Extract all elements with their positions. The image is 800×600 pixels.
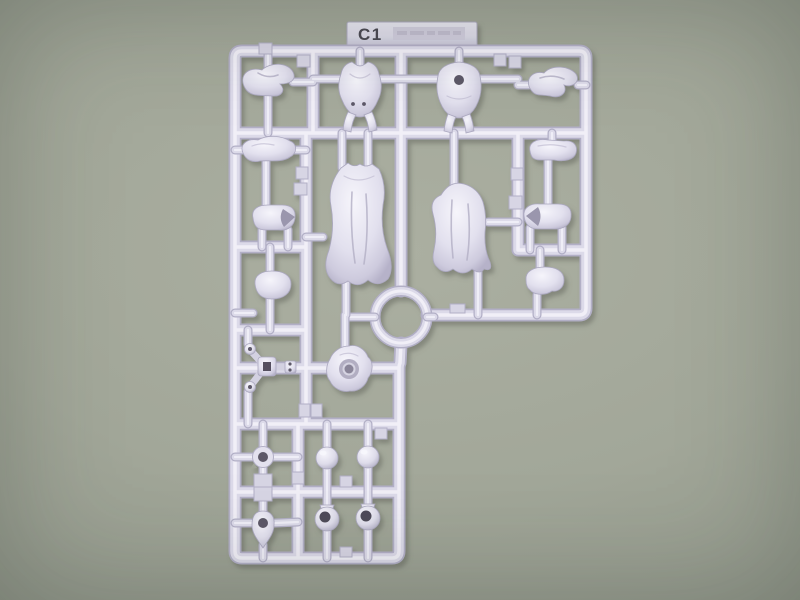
runner-code-label: C1 <box>358 25 383 44</box>
sprue-runner-c1: C1 <box>235 22 586 558</box>
part-cuff-open-left <box>524 204 571 229</box>
part-rosette-socket <box>327 346 373 392</box>
label-tab: C1 <box>347 22 477 47</box>
part-pillow-right <box>526 267 564 294</box>
photo-backdrop: C1 <box>0 0 800 600</box>
runner-ring <box>345 291 434 343</box>
part-forearm-right <box>530 139 577 160</box>
part-ball-joint-1 <box>316 447 338 469</box>
part-keyhole-ring <box>252 511 274 548</box>
part-socket-ball-2 <box>356 504 380 530</box>
part-ball-joint-2 <box>357 446 379 468</box>
part-curl-top-left <box>243 64 294 96</box>
part-cuff-open-right <box>253 205 295 230</box>
part-skirt-right <box>432 183 491 273</box>
part-torso-vest-hole <box>437 62 481 133</box>
part-small-ring <box>250 447 274 470</box>
part-shoe-left <box>242 136 296 161</box>
part-pillow-left <box>255 271 291 299</box>
part-curl-top-right <box>528 67 577 97</box>
sprue-photo: C1 <box>0 0 800 600</box>
part-socket-ball-1 <box>315 505 339 531</box>
part-torso-vest-straps <box>339 62 382 132</box>
part-skirt-left <box>326 163 392 285</box>
